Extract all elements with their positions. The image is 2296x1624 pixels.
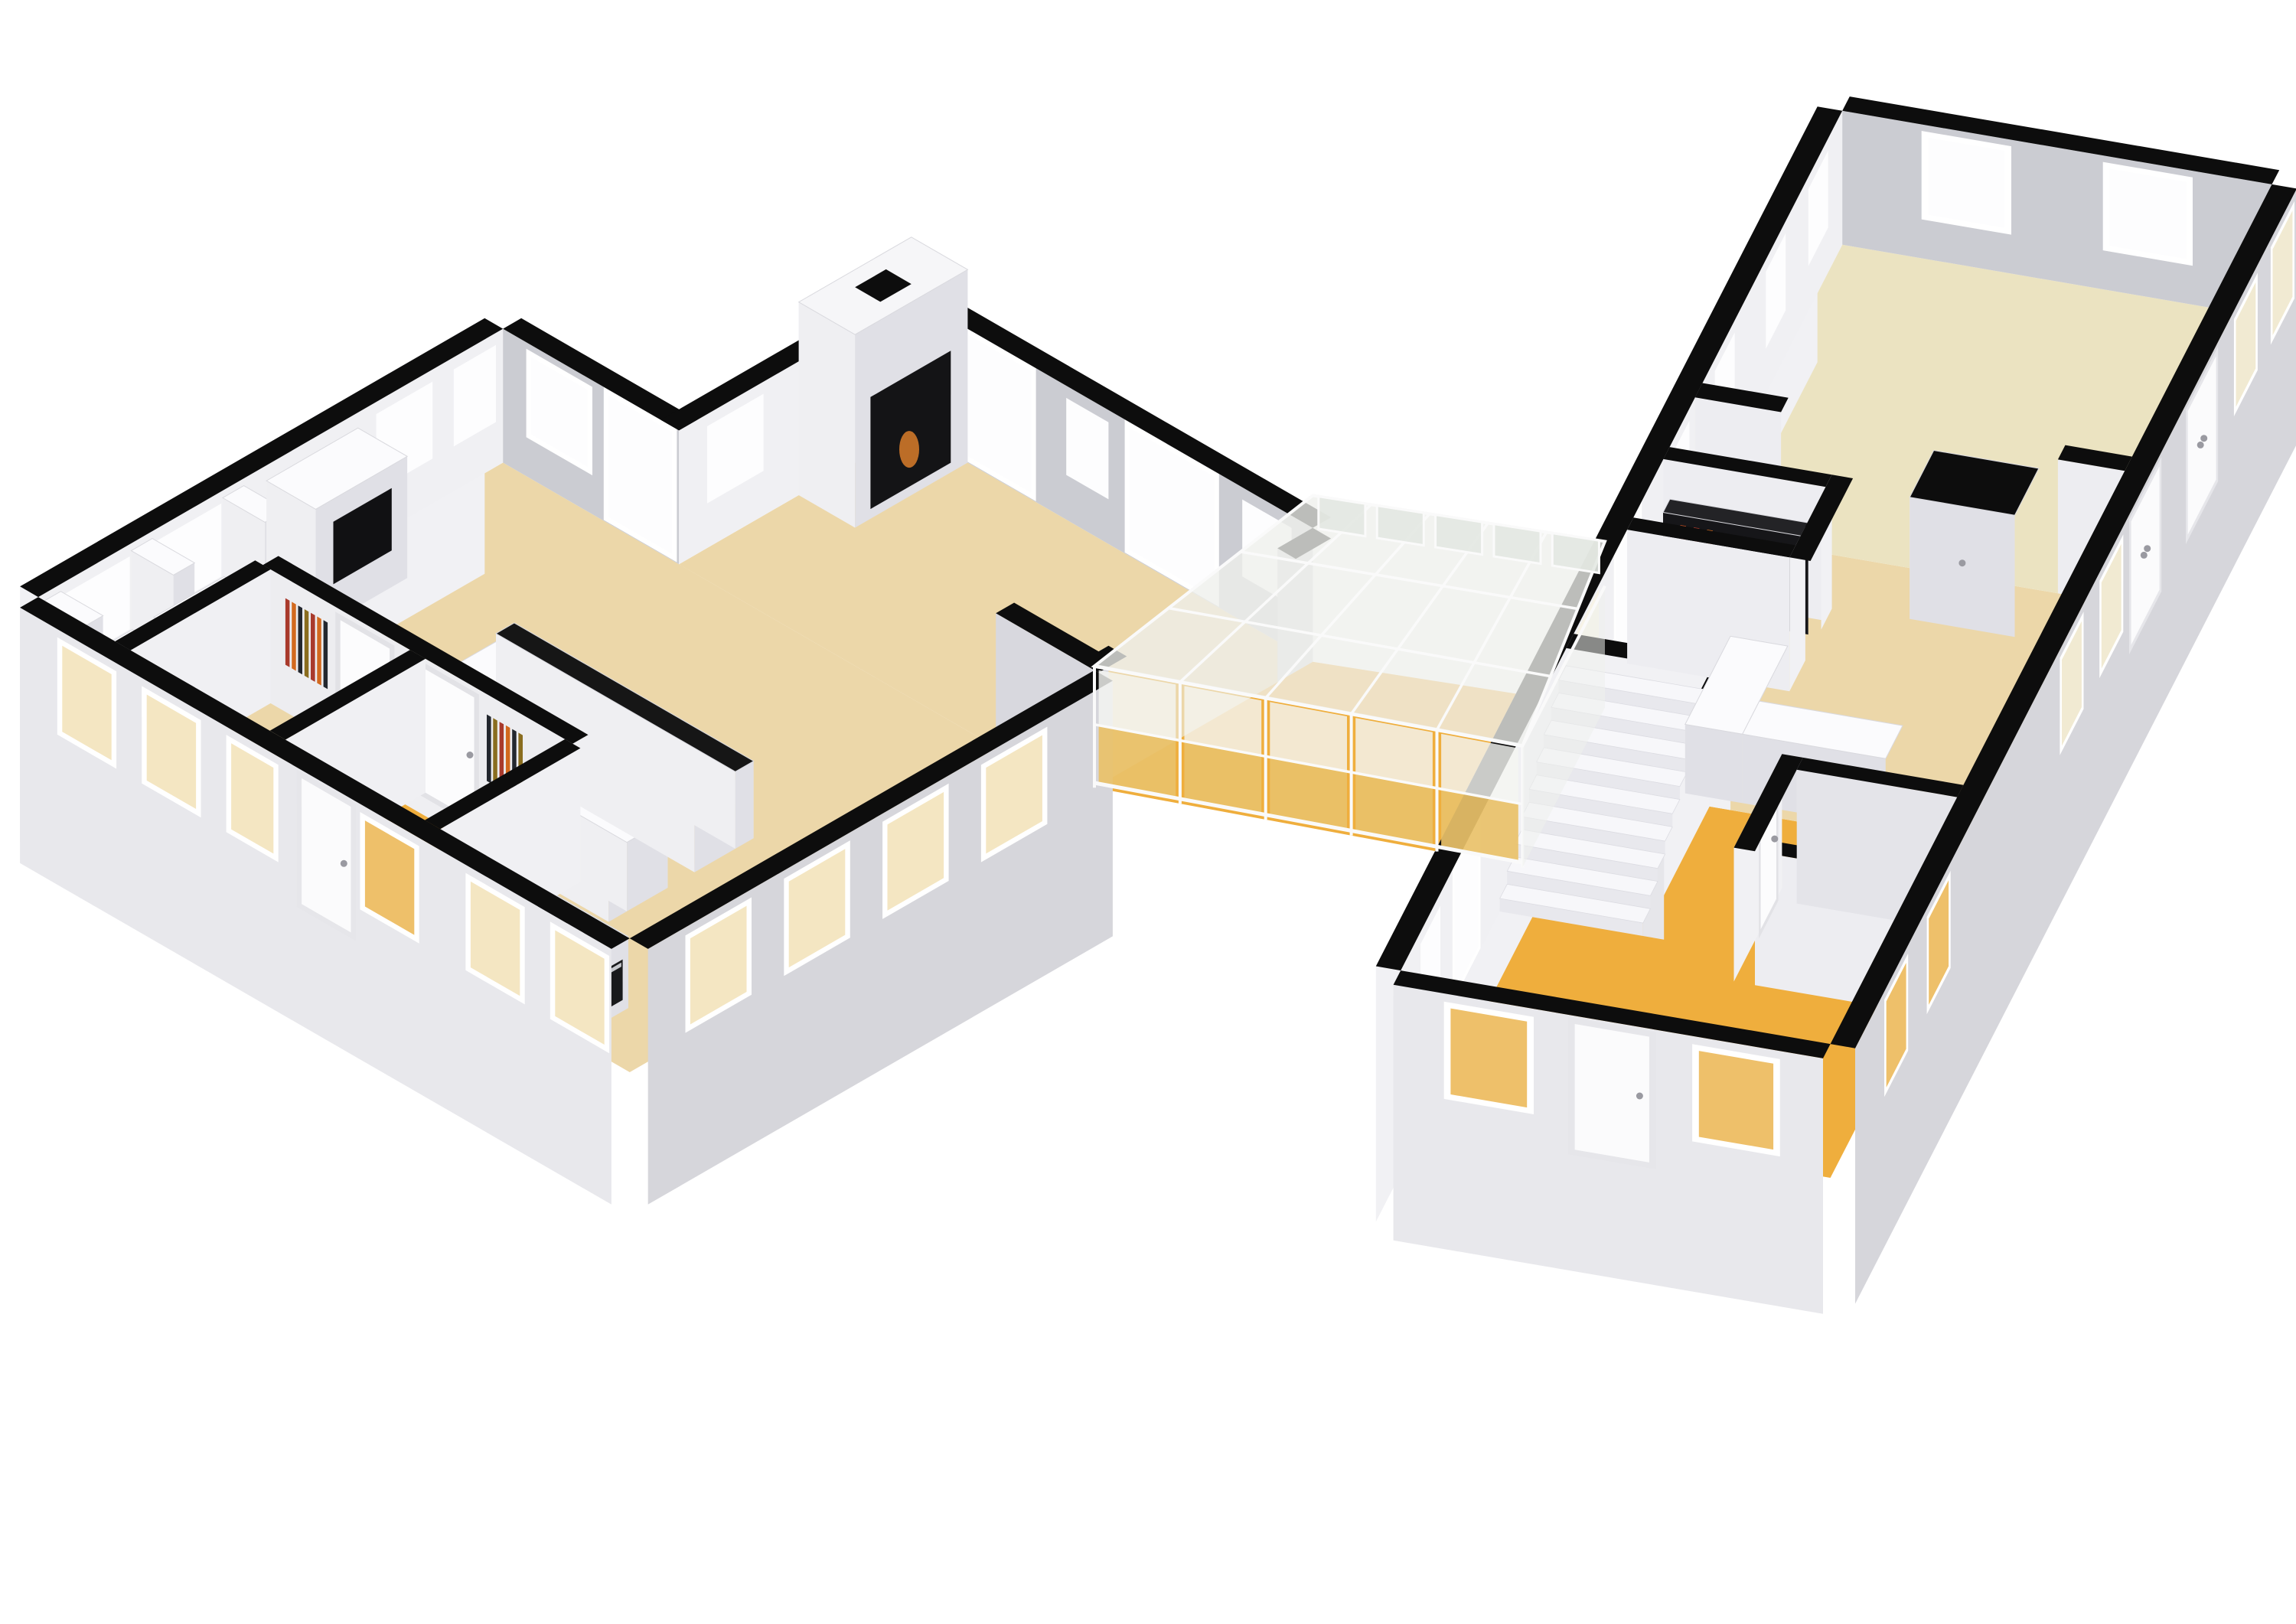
floor-plan-page xyxy=(0,0,2296,1624)
floor-plan-3d-render xyxy=(0,0,2296,1624)
